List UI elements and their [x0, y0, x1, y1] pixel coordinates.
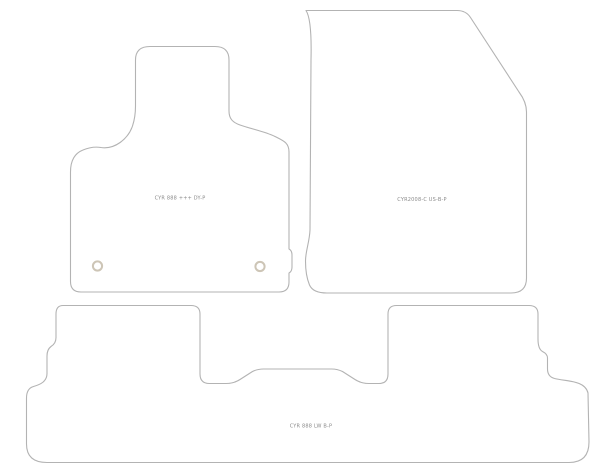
driver-front-mat: CYR 888 +++ DY-P: [71, 47, 293, 293]
driver-mat-part-code: CYR 888 +++ DY-P: [155, 196, 206, 202]
passenger-mat-part-code: CYR2008-C US-B-P: [397, 197, 446, 203]
rear-mat-part-code: CYR 888 LW B-P: [290, 424, 333, 430]
passenger-front-mat: CYR2008-C US-B-P: [306, 11, 527, 294]
passenger-mat-outline: [306, 11, 527, 294]
rear-mat-outline: [27, 306, 590, 463]
rear-mat: CYR 888 LW B-P: [27, 306, 590, 463]
mat-set-diagram: CYR 888 +++ DY-P CYR2008-C US-B-P CYR 88…: [0, 0, 600, 475]
mat-set-svg: CYR 888 +++ DY-P CYR2008-C US-B-P CYR 88…: [0, 0, 600, 475]
driver-mat-outline: [71, 47, 293, 293]
